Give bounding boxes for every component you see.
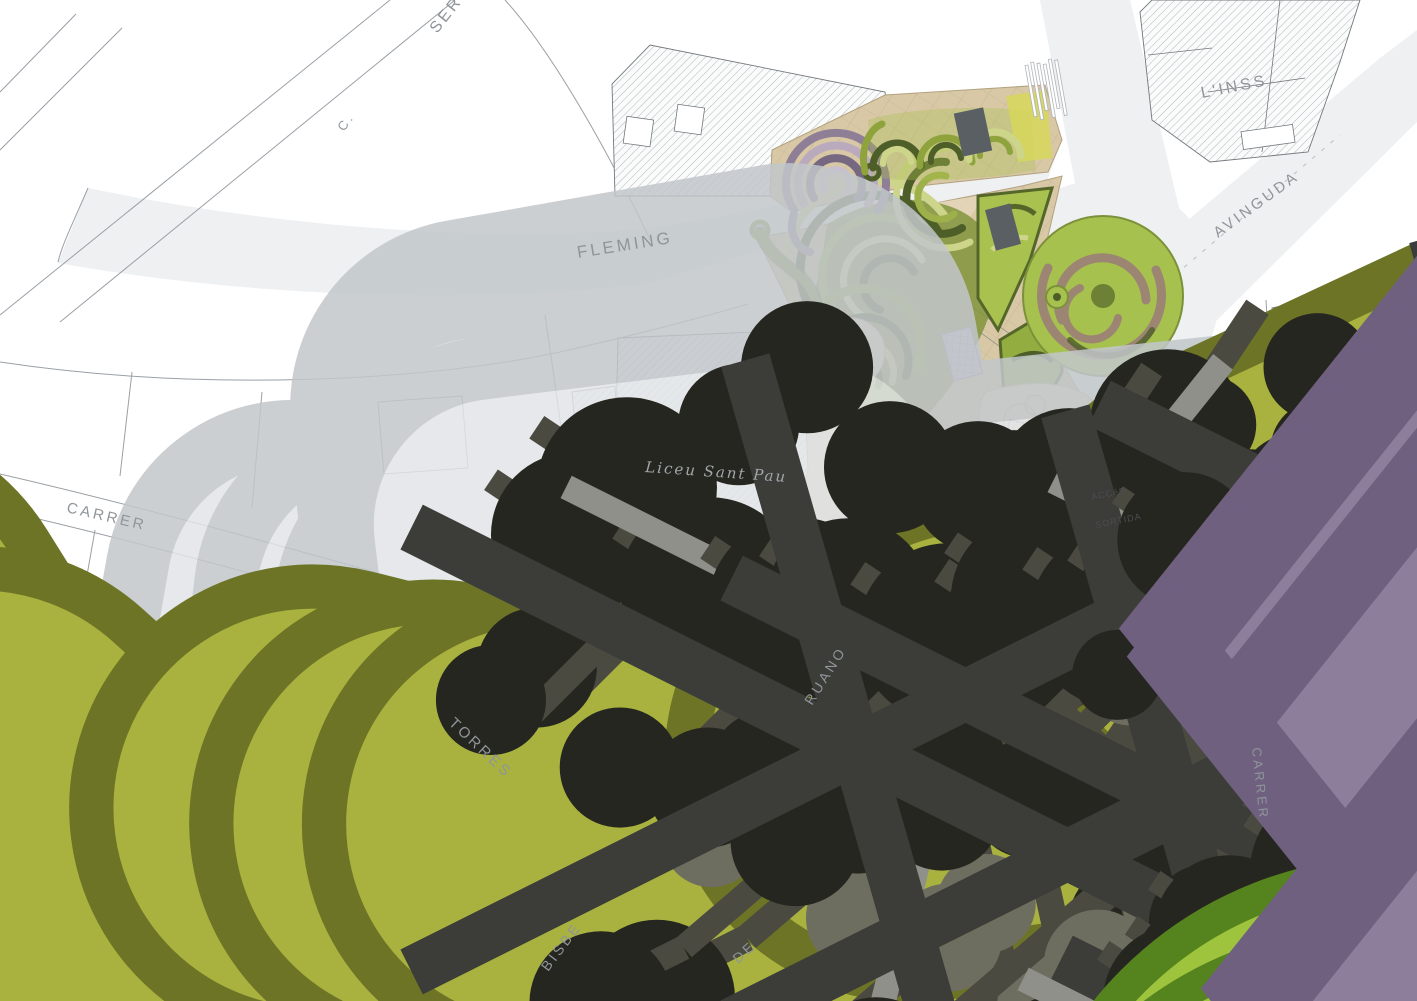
masterplan-drawing: SER C. FLEMING L'INSS AVINGUDA CARRER Li… xyxy=(0,0,1417,1001)
street-label-c: C. xyxy=(334,110,357,134)
courtyard xyxy=(623,116,653,146)
street-label-ser: SER xyxy=(427,0,466,36)
courtyard xyxy=(674,104,704,134)
site-plan-canvas: SER C. FLEMING L'INSS AVINGUDA CARRER Li… xyxy=(0,0,1417,1001)
